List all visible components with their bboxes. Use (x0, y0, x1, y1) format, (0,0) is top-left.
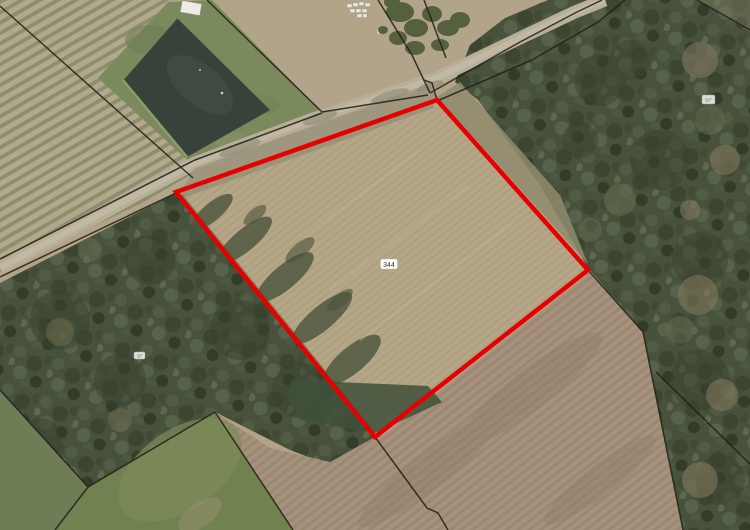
aerial-map-canvas[interactable]: 344 (0, 0, 750, 530)
pond-speck (199, 69, 201, 71)
marker-left-forest (134, 352, 145, 359)
parcel-label: 344 (381, 259, 398, 269)
marker-right-forest (702, 95, 715, 104)
aerial-map-view[interactable]: 344 (0, 0, 750, 530)
pond-speck (221, 92, 224, 95)
parcel-label-text: 344 (383, 262, 395, 269)
